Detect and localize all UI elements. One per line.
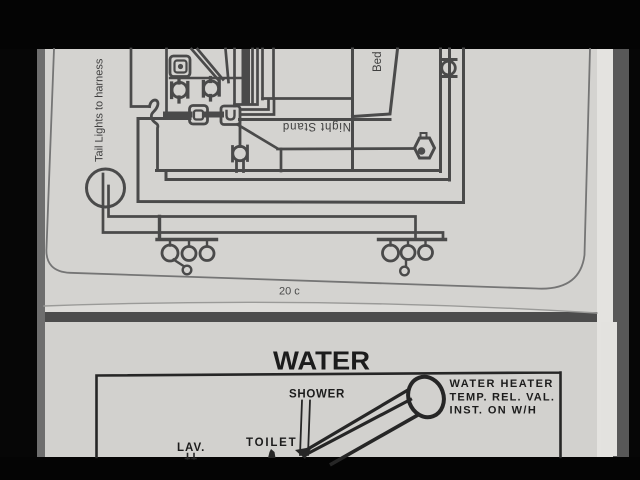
- svg-text:20 c: 20 c: [279, 286, 300, 298]
- svg-text:INST. ON W/H: INST. ON W/H: [450, 405, 538, 417]
- svg-text:Night Stand: Night Stand: [282, 120, 351, 132]
- svg-text:Bed: Bed: [372, 52, 384, 72]
- svg-text:SHOWER: SHOWER: [289, 389, 345, 401]
- svg-text:Tail Lights to harness: Tail Lights to harness: [94, 58, 106, 162]
- svg-text:TOILET: TOILET: [246, 437, 297, 449]
- svg-text:WATER HEATER: WATER HEATER: [450, 378, 554, 390]
- svg-text:LAV.: LAV.: [177, 442, 205, 454]
- svg-text:WATER: WATER: [273, 348, 370, 376]
- svg-text:TEMP. REL. VAL.: TEMP. REL. VAL.: [450, 392, 556, 404]
